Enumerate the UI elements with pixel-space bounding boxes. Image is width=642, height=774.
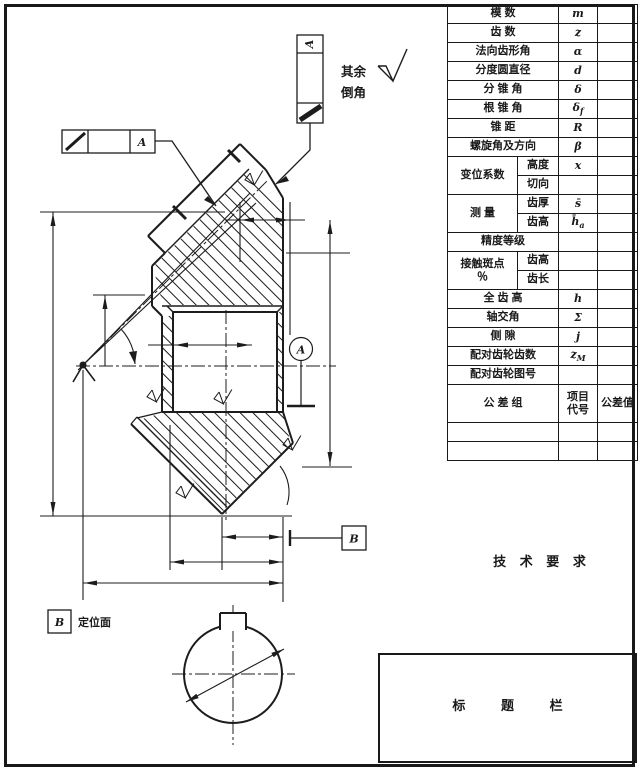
param-sublabel: 齿长 [518, 271, 559, 290]
param-label: 锥 距 [448, 119, 559, 138]
gear-end-view [184, 612, 285, 723]
title-block-label: 标 题 栏 [380, 695, 635, 714]
param-value [598, 366, 638, 385]
param-label: 测 量 [448, 195, 518, 233]
drawing-sheet: A A A B B 定位面 其余 倒角 模 数m 齿 数z 法向齿形角α 分度圆… [0, 0, 642, 774]
param-label: 螺旋角及方向 [448, 138, 559, 157]
table-row [448, 423, 638, 442]
param-value [598, 157, 638, 176]
diameter-dimension [185, 647, 285, 704]
param-label: 配对齿轮齿数 [448, 347, 559, 366]
param-value [598, 233, 638, 252]
param-symbol: α [559, 43, 598, 62]
param-label: 侧 隙 [448, 328, 559, 347]
param-symbol: 项目代号 [559, 385, 598, 423]
rotated-tag-letter: A [303, 39, 316, 49]
param-label: 齿 数 [448, 24, 559, 43]
table-row: 配对齿轮齿数zM [448, 347, 638, 366]
runout-symbol-icon [66, 133, 85, 150]
table-row: 齿 数z [448, 24, 638, 43]
param-value: 公差值 [598, 385, 638, 423]
param-label: 精度等级 [448, 233, 559, 252]
param-value [598, 81, 638, 100]
param-value [598, 138, 638, 157]
technical-requirements-heading: 技 术 要 求 [447, 551, 637, 570]
param-value [598, 214, 638, 233]
param-value [598, 24, 638, 43]
param-value [598, 328, 638, 347]
param-label: 模 数 [448, 5, 559, 24]
locating-frame-letter: B [54, 616, 64, 629]
param-symbol [559, 176, 598, 195]
param-label: 变位系数 [448, 157, 518, 195]
surface-finish-default-icon [378, 49, 407, 81]
bore-outline [167, 306, 283, 412]
param-value [598, 119, 638, 138]
param-value [598, 176, 638, 195]
param-value [598, 195, 638, 214]
table-row: 全 齿 高h [448, 290, 638, 309]
param-symbol: R [559, 119, 598, 138]
param-label: 根 锥 角 [448, 100, 559, 119]
param-label: 法向齿形角 [448, 43, 559, 62]
table-row: 模 数m [448, 5, 638, 24]
rotated-datum-tag [276, 35, 323, 184]
param-sublabel: 切向 [518, 176, 559, 195]
table-row: 根 锥 角δf [448, 100, 638, 119]
surface-note-line1: 其余 [341, 64, 367, 79]
param-symbol [559, 233, 598, 252]
param-value [598, 347, 638, 366]
param-value [598, 309, 638, 328]
table-row: 配对齿轮图号 [448, 366, 638, 385]
param-sublabel: 齿高 [518, 214, 559, 233]
title-block: 标 题 栏 [378, 653, 637, 763]
param-label: 公 差 组 [448, 385, 559, 423]
param-symbol: δf [559, 100, 598, 119]
param-symbol: s̄ [559, 195, 598, 214]
table-row: 锥 距R [448, 119, 638, 138]
fcf-datum-letter: A [137, 136, 147, 149]
table-row: 分度圆直径d [448, 62, 638, 81]
param-symbol [559, 366, 598, 385]
param-symbol: Σ [559, 309, 598, 328]
table-row [448, 442, 638, 461]
table-row: 测 量齿厚s̄ [448, 195, 638, 214]
param-symbol: x [559, 157, 598, 176]
table-row: 精度等级 [448, 233, 638, 252]
locating-face-label: 定位面 [78, 615, 111, 629]
param-symbol: z [559, 24, 598, 43]
param-label: 接触斑点％ [448, 252, 518, 290]
datum-a-letter: A [296, 344, 306, 357]
param-symbol: h [559, 290, 598, 309]
param-label [448, 442, 559, 461]
param-symbol: zM [559, 347, 598, 366]
table-row: 螺旋角及方向β [448, 138, 638, 157]
param-label: 配对齿轮图号 [448, 366, 559, 385]
param-label: 全 齿 高 [448, 290, 559, 309]
param-value [598, 423, 638, 442]
param-sublabel: 齿厚 [518, 195, 559, 214]
table-row: 变位系数高度x [448, 157, 638, 176]
param-value [598, 43, 638, 62]
table-row: 侧 隙j [448, 328, 638, 347]
param-symbol: d [559, 62, 598, 81]
table-row: 分 锥 角δ [448, 81, 638, 100]
param-value [598, 100, 638, 119]
param-label: 分 锥 角 [448, 81, 559, 100]
param-symbol: m [559, 5, 598, 24]
param-sublabel: 高度 [518, 157, 559, 176]
param-value [598, 252, 638, 271]
param-sublabel: 齿高 [518, 252, 559, 271]
param-symbol: h̄a [559, 214, 598, 233]
param-symbol: β [559, 138, 598, 157]
param-value [598, 62, 638, 81]
param-value [598, 271, 638, 290]
param-symbol: j [559, 328, 598, 347]
param-value [598, 290, 638, 309]
table-row: 轴交角Σ [448, 309, 638, 328]
param-label [448, 423, 559, 442]
param-label: 轴交角 [448, 309, 559, 328]
param-symbol: δ [559, 81, 598, 100]
table-row: 公 差 组项目代号公差值 [448, 385, 638, 423]
gear-parameter-table: 模 数m 齿 数z 法向齿形角α 分度圆直径d 分 锥 角δ 根 锥 角δf 锥… [447, 4, 638, 461]
param-symbol [559, 442, 598, 461]
param-symbol [559, 423, 598, 442]
param-symbol [559, 252, 598, 271]
param-label: 分度圆直径 [448, 62, 559, 81]
param-value [598, 442, 638, 461]
table-row: 接触斑点％齿高 [448, 252, 638, 271]
runout-symbol-icon [300, 106, 321, 120]
param-value [598, 5, 638, 24]
datum-b-letter: B [348, 533, 358, 546]
param-symbol [559, 271, 598, 290]
surface-note-line2: 倒角 [340, 85, 366, 100]
table-row: 法向齿形角α [448, 43, 638, 62]
